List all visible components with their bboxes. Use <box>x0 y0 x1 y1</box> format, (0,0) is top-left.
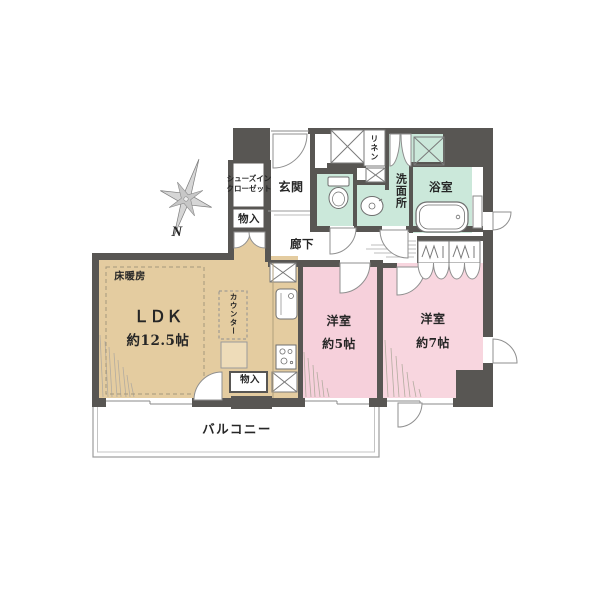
entrance-label: 玄関 <box>278 179 303 195</box>
bedroom7-closet-icon <box>418 241 480 263</box>
storage-upper-label: 物入 <box>238 212 260 226</box>
bedroom7-bottom-door <box>398 403 422 427</box>
washroom-label: 洗面所 <box>393 173 408 209</box>
bedroom5-size-label: 約5帖 <box>322 336 356 352</box>
bathroom-label: 浴室 <box>429 180 453 196</box>
floorplan-drawing <box>0 0 604 609</box>
shoes-closet-label: シューズイン クローゼット <box>227 174 272 194</box>
kitchen-sink-icon <box>276 289 297 319</box>
counter-cabinet <box>221 342 247 368</box>
shoes-closet-label-line1: シューズイン <box>227 174 272 184</box>
north-label: N <box>171 222 182 242</box>
ldk-size-label: 約12.5帖 <box>127 332 190 350</box>
stove-icon <box>276 345 296 369</box>
bedroom7-side-door <box>493 339 517 363</box>
balcony-label: バルコニー <box>202 422 272 439</box>
bathtub-icon <box>416 202 468 232</box>
ldk-name-label: ＬＤＫ <box>133 306 183 328</box>
corridor-label: 廊下 <box>290 237 314 253</box>
linen-label: リネン <box>369 135 380 162</box>
toilet-icon <box>328 177 349 209</box>
bedroom7-size-label: 約7帖 <box>416 335 450 351</box>
counter-label: カウンター <box>228 293 238 336</box>
floor-heating-label: 床暖房 <box>114 270 146 284</box>
hall-closet-icon <box>331 130 364 163</box>
bedroom5-name-label: 洋室 <box>326 313 351 329</box>
floorplan: シューズイン クローゼット 物入 玄関 リネン 洗面所 浴室 廊下 床暖房 ＬＤ… <box>0 0 604 609</box>
shoes-closet-label-line2: クローゼット <box>227 184 272 194</box>
toilet-door <box>330 228 356 254</box>
washbasin-icon <box>361 197 383 216</box>
bedroom7-name-label: 洋室 <box>420 311 445 327</box>
bath-window <box>473 196 482 228</box>
bathroom-outer-door <box>493 212 511 230</box>
entrance-door <box>273 134 307 168</box>
window-bedroom5 <box>305 398 369 407</box>
compass-icon <box>148 151 224 245</box>
window-ldk <box>106 398 192 407</box>
washroom-door <box>380 230 408 258</box>
storage-lower-label: 物入 <box>240 375 260 388</box>
